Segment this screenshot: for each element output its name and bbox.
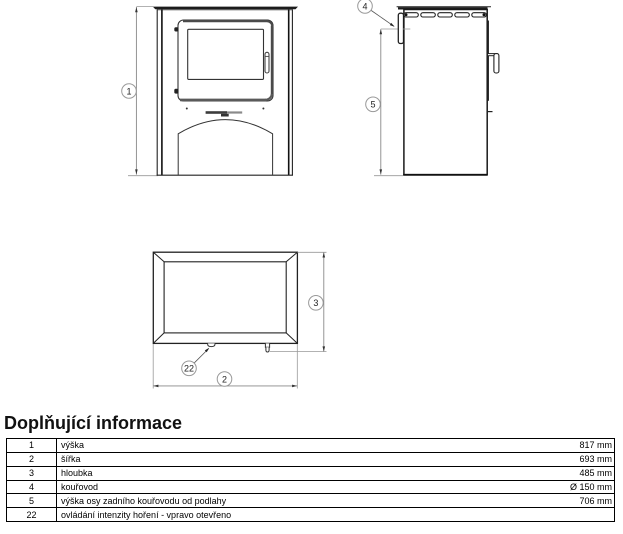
svg-text:5: 5 (370, 100, 375, 110)
svg-text:22: 22 (184, 364, 194, 374)
svg-text:2: 2 (222, 374, 227, 384)
svg-text:1: 1 (126, 86, 131, 96)
svg-text:4: 4 (362, 1, 367, 11)
svg-text:3: 3 (313, 298, 318, 308)
